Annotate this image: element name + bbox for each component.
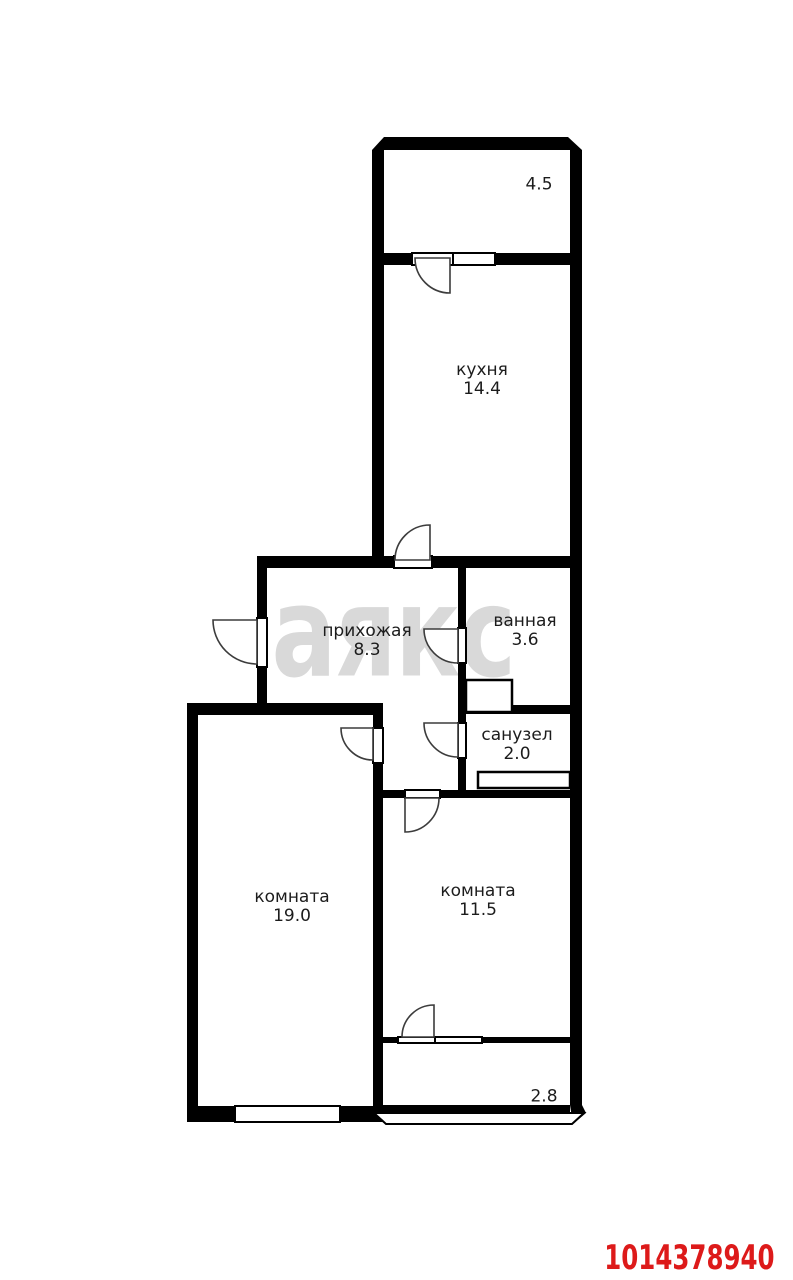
listing-id: 1014378940 <box>605 1238 775 1278</box>
room-name: комната <box>440 882 515 901</box>
room-area: 14.4 <box>456 380 508 399</box>
room-small-door-swing <box>405 798 439 832</box>
bottom-balcony-door-window-opening <box>398 1037 482 1043</box>
room-area: 2.0 <box>481 745 552 764</box>
wc-door-swing <box>424 723 458 757</box>
room-label-balcony-bottom: 2.8 <box>530 1088 557 1107</box>
bottom-balcony-door-swing <box>402 1005 434 1037</box>
balcony-door-swing <box>415 258 450 293</box>
room-name: санузел <box>481 726 552 745</box>
room-area: 11.5 <box>440 901 515 920</box>
wall-right-outer <box>570 150 582 1105</box>
room-name: ванная <box>493 612 556 631</box>
room-label-balcony-top: 4.5 <box>525 176 552 195</box>
room-name: прихожая <box>322 622 411 641</box>
room-large-door-opening <box>373 728 383 763</box>
wall-left-outer <box>187 703 198 1122</box>
bottom-balcony-slab <box>374 1113 584 1124</box>
openings <box>235 253 584 1124</box>
room-area: 19.0 <box>254 907 329 926</box>
room-label-kitchen: кухня 14.4 <box>456 361 508 399</box>
wall-balcony-top <box>372 137 582 150</box>
wc-door-opening <box>458 723 466 758</box>
bathroom-duct <box>466 680 512 712</box>
room-label-room-small: комната 11.5 <box>440 882 515 920</box>
room-area: 4.5 <box>525 176 552 195</box>
room-label-hallway: прихожая 8.3 <box>322 622 411 660</box>
wc-duct <box>478 772 570 788</box>
room-label-bathroom: ванная 3.6 <box>493 612 556 650</box>
room-label-wc: санузел 2.0 <box>481 726 552 764</box>
wall-kitchen-left <box>372 150 384 568</box>
bathroom-door-opening <box>458 628 466 663</box>
room-label-room-large: комната 19.0 <box>254 888 329 926</box>
bathroom-door-swing <box>424 629 458 663</box>
room-large-door-swing <box>341 728 373 760</box>
floor-plan: аякс <box>0 0 793 1280</box>
room-large-window <box>235 1106 340 1122</box>
room-area: 2.8 <box>530 1088 557 1107</box>
wall-room-large-top <box>187 703 383 715</box>
room-area: 8.3 <box>322 641 411 660</box>
room-small-door-opening <box>405 790 440 798</box>
entrance-door-swing <box>213 620 257 664</box>
entrance-door-opening <box>257 618 267 667</box>
room-name: комната <box>254 888 329 907</box>
room-area: 3.6 <box>493 631 556 650</box>
kitchen-door-swing <box>395 525 430 560</box>
room-name: кухня <box>456 361 508 380</box>
